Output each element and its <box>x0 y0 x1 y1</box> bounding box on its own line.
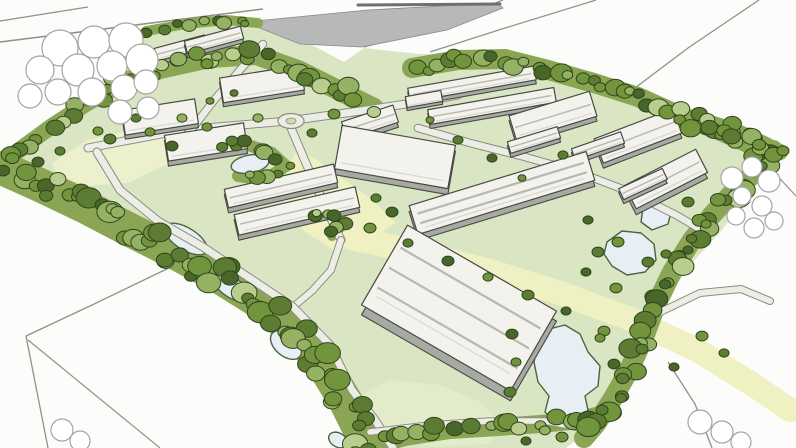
tree-belt-north-west-tree <box>367 107 380 118</box>
outline-field-tree <box>111 75 137 101</box>
tree-belt-north-west-tree <box>170 52 187 66</box>
tree-belt-west-tree <box>324 369 350 390</box>
tree-row-top-tree <box>199 16 209 24</box>
tree-belt-south-tree <box>511 422 527 435</box>
tree-belt-west-tree <box>111 207 125 218</box>
roadside-tree <box>669 363 679 371</box>
roadside-tree <box>202 123 212 131</box>
tree-belt-north-west-tree <box>225 48 241 61</box>
outline-field-tree <box>742 157 762 177</box>
tree-belt-northeast-corner-tree <box>722 129 740 144</box>
tree-cluster-pond-tree <box>268 154 282 165</box>
roadside-tree <box>93 127 103 135</box>
roadside-tree <box>610 283 622 293</box>
tree-belt-south-tree <box>446 421 463 435</box>
roadside-tree <box>636 344 648 354</box>
tree-cluster-junction-tree <box>327 210 341 221</box>
tree-row-top-tree <box>182 20 196 32</box>
outline-field-tree <box>137 97 159 119</box>
tree-cluster-junction-tree <box>324 226 337 237</box>
outline-field-tree <box>711 421 733 443</box>
outline-field-tree <box>70 431 90 448</box>
roadside-tree <box>608 359 620 369</box>
tree-belt-north-east-tree <box>576 73 590 84</box>
roadside-tree <box>371 194 381 202</box>
tree-belt-west-tree <box>307 366 325 381</box>
tree-belt-west-tree <box>324 392 341 406</box>
tree-belt-east-tree <box>616 394 627 403</box>
outline-field-tree <box>733 187 751 205</box>
roadside-tree <box>55 147 65 155</box>
outline-field-tree <box>731 432 751 448</box>
roadside-tree <box>683 246 693 254</box>
tree-belt-north-east-tree <box>484 51 497 62</box>
outline-field-tree <box>688 410 712 434</box>
roadside-tree <box>453 136 463 144</box>
motorway-line <box>358 4 500 5</box>
roadside-tree <box>226 136 238 146</box>
tree-belt-north-west-tree <box>297 73 313 86</box>
roadside-tree <box>145 128 155 136</box>
outline-field-tree <box>744 218 764 238</box>
tree-cluster-pond-tree <box>237 135 251 147</box>
tree-belt-north-east-tree <box>534 65 552 80</box>
tree-belt-north-east-tree <box>518 57 529 66</box>
tree-belt-west-tree <box>148 223 171 242</box>
roadside-tree <box>386 207 398 217</box>
tree-belt-south-tree <box>462 418 481 433</box>
tree-belt-south-tree <box>424 417 445 434</box>
roadside-tree <box>561 307 571 315</box>
roadside-tree <box>483 273 493 281</box>
tree-belt-west-tree <box>196 273 220 293</box>
tree-row-top-tree <box>241 20 249 27</box>
tree-belt-west-tree <box>315 343 341 364</box>
outline-field-tree <box>108 100 132 124</box>
tree-belt-north-east-tree <box>562 71 573 80</box>
outline-field-tree <box>758 170 780 192</box>
roadside-tree <box>32 157 44 167</box>
tree-belt-west-tree <box>269 296 292 315</box>
roadside-tree <box>522 290 534 300</box>
roadside-tree <box>521 437 531 445</box>
roadside-tree <box>596 405 608 415</box>
outline-field-tree <box>78 78 106 106</box>
tree-belt-east-tree <box>577 417 601 436</box>
roadside-tree <box>682 197 694 207</box>
roadside-tree <box>595 334 605 342</box>
tree-row-top-tree <box>216 17 231 30</box>
tree-belt-west-tree <box>352 396 372 412</box>
roadside-tree <box>506 329 518 339</box>
tree-belt-north-east-tree <box>680 120 701 137</box>
roadside-tree <box>307 129 317 137</box>
roadside-tree <box>403 239 413 247</box>
tree-belt-west-tree <box>6 153 19 164</box>
tree-belt-west-tree <box>0 165 10 176</box>
roadside-tree <box>511 358 521 366</box>
roadside-tree <box>592 247 604 257</box>
outline-field-tree <box>765 212 783 230</box>
roadside-tree <box>230 90 238 97</box>
tree-cluster-pond-tree <box>217 142 228 151</box>
roadside-tree <box>661 250 671 258</box>
roundabout-island <box>286 118 296 124</box>
outline-field-tree <box>727 207 745 225</box>
tree-belt-northeast-corner-tree <box>753 139 766 150</box>
roadside-tree <box>328 109 340 119</box>
outline-field-tree <box>721 167 743 189</box>
tree-belt-north-west-tree <box>239 41 260 58</box>
tree-belt-east-tree <box>686 234 696 243</box>
tree-cluster-junction-tree <box>312 209 321 216</box>
tree-belt-east-tree <box>659 280 670 289</box>
tree-belt-west-tree <box>40 190 53 201</box>
roadside-tree <box>177 114 187 122</box>
tree-cluster-pond-tree <box>245 171 254 178</box>
tree-belt-north-east-tree <box>454 54 471 68</box>
roadside-tree <box>442 256 454 266</box>
tree-belt-west-tree <box>261 315 281 331</box>
tree-row-top-tree <box>173 20 183 28</box>
tree-belt-north-west-tree <box>344 93 361 107</box>
tree-belt-south-tree <box>392 426 410 440</box>
masterplan-illustration <box>0 0 796 448</box>
outline-field-tree <box>51 419 73 441</box>
outline-field-tree <box>45 79 71 105</box>
roadside-tree <box>642 257 654 267</box>
tree-belt-north-west-tree <box>261 48 275 60</box>
roadside-tree <box>504 387 516 397</box>
roadside-tree <box>104 134 116 144</box>
tree-row-top-tree <box>159 25 171 35</box>
roadside-tree <box>612 237 624 247</box>
tree-belt-northeast-corner-tree <box>701 120 718 134</box>
tree-belt-west-tree <box>156 253 173 267</box>
roadside-tree <box>556 432 568 442</box>
tree-belt-north-east-tree <box>672 102 690 117</box>
tree-belt-west-tip-tree <box>46 120 64 135</box>
tree-belt-west-tree <box>50 172 66 185</box>
tree-belt-west-tree <box>221 271 238 285</box>
roadside-tree <box>583 216 593 224</box>
roadside-tree <box>166 141 178 151</box>
tree-belt-north-west-tree <box>211 52 222 61</box>
tree-belt-east-tree <box>630 322 651 339</box>
masterplan-canvas <box>0 0 796 448</box>
roadside-tree <box>558 151 568 159</box>
tree-belt-north-west-tree <box>338 77 359 94</box>
tree-belt-north-east-tree <box>594 82 606 91</box>
tree-belt-east-tree <box>672 258 694 276</box>
tree-belt-west-tree <box>353 420 366 431</box>
outline-field-tree <box>134 70 158 94</box>
roadside-tree <box>719 349 729 357</box>
roadside-tree <box>206 98 214 105</box>
outline-field-tree <box>18 84 42 108</box>
roadside-tree <box>696 331 708 341</box>
tree-belt-east-tree <box>616 373 629 383</box>
tree-belt-northeast-corner-tree <box>777 146 789 156</box>
roadside-tree <box>581 268 591 276</box>
tree-belt-north-west-tree <box>201 59 213 69</box>
roadside-tree <box>701 220 711 228</box>
roadside-tree <box>518 175 526 182</box>
roadside-tree <box>426 117 434 124</box>
tree-belt-south-tree <box>539 426 550 435</box>
tree-belt-north-east-tree <box>633 89 644 98</box>
roadside-tree <box>253 114 263 122</box>
tree-belt-east-tree <box>710 194 725 207</box>
roadside-tree <box>487 154 497 162</box>
tree-cluster-pond-tree <box>286 162 295 169</box>
outline-field-tree <box>26 56 54 84</box>
tree-belt-west-tree <box>16 164 36 180</box>
roadside-tree <box>364 223 376 233</box>
